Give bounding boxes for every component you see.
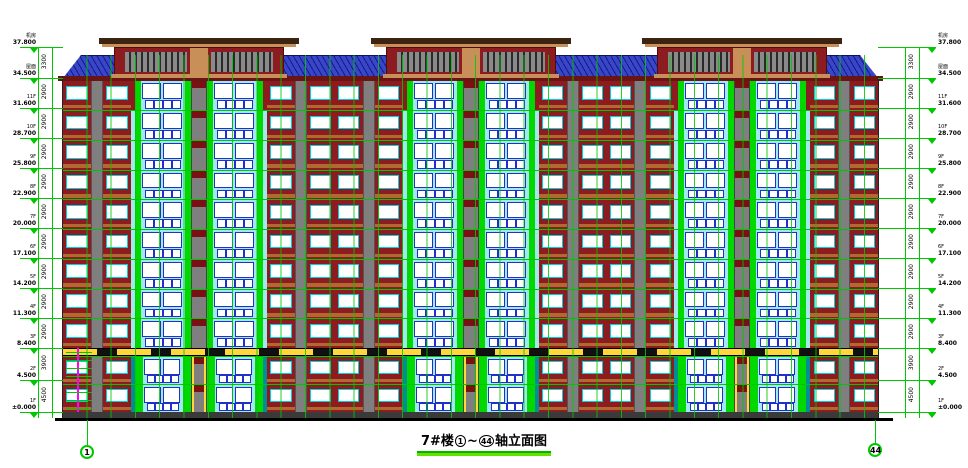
level-marker: 6F17.100 (2, 244, 36, 258)
level-triangle-icon (928, 169, 936, 174)
elevation-value: 22.900 (938, 190, 968, 197)
level-triangle-icon (30, 199, 38, 204)
level-triangle-icon (928, 259, 936, 264)
dim-text: 2900 (907, 144, 918, 162)
dim-text-label: 2900 (40, 114, 50, 129)
dim-text-label: 2900 (907, 234, 917, 249)
dim-text: 2900 (40, 294, 51, 312)
level-tick (20, 78, 63, 79)
dim-text-label: 2900 (40, 144, 50, 159)
level-triangle-icon (30, 259, 38, 264)
elevation-value: 8.400 (938, 340, 968, 347)
level-marker: 5F14.200 (2, 274, 36, 288)
dim-text: 2900 (907, 114, 918, 132)
level-tick (20, 348, 63, 349)
elevation-value: 11.300 (2, 310, 36, 317)
level-tick (20, 228, 63, 229)
dim-text: 3900 (40, 355, 51, 373)
level-triangle-icon (30, 169, 38, 174)
level-triangle-icon (928, 48, 936, 53)
dim-text: 4500 (40, 387, 51, 405)
dim-text-label: 4500 (907, 387, 917, 402)
level-marker: 屋面34.500 (938, 64, 968, 78)
dim-text: 3300 (907, 54, 918, 72)
elevation-value: 22.900 (2, 190, 36, 197)
dim-text-label: 2900 (40, 264, 50, 279)
level-triangle-icon (30, 413, 38, 418)
elevation-value: 34.500 (938, 70, 968, 77)
dim-text-label: 2900 (907, 324, 917, 339)
dim-text-label: 2900 (907, 144, 917, 159)
elevation-value: 11.300 (938, 310, 968, 317)
level-marker: 9F25.800 (938, 154, 968, 168)
dim-text-label: 2900 (907, 294, 917, 309)
dim-text: 2900 (40, 234, 51, 252)
dim-text-label: 2900 (907, 264, 917, 279)
elevation-value: ±0.000 (2, 404, 36, 411)
elevation-value: 17.100 (2, 250, 36, 257)
elevation-value: 28.700 (938, 130, 968, 137)
title-prefix: 7#楼 (421, 434, 454, 449)
dim-text-label: 2900 (40, 294, 50, 309)
elevation-value: 20.000 (938, 220, 968, 227)
level-marker: 2F4.500 (938, 366, 968, 380)
dim-text-label: 3300 (40, 54, 50, 69)
dim-text: 3300 (40, 54, 51, 72)
level-triangle-icon (30, 48, 38, 53)
dim-text: 2900 (40, 264, 51, 282)
level-tick (20, 47, 63, 48)
level-marker: 8F22.900 (938, 184, 968, 198)
level-marker: 8F22.900 (2, 184, 36, 198)
level-triangle-icon (928, 289, 936, 294)
dim-text-label: 2900 (907, 174, 917, 189)
level-marker: 屋面34.500 (2, 64, 36, 78)
podium-dim-tick (66, 376, 92, 377)
elevation-value: 28.700 (2, 130, 36, 137)
level-tick (20, 318, 63, 319)
building-edge-right (878, 76, 879, 420)
elevation-value: 25.800 (938, 160, 968, 167)
level-marker: 1F±0.000 (938, 398, 968, 412)
elevation-value: 14.200 (938, 280, 968, 287)
dim-text-label: 3900 (40, 355, 50, 370)
level-marker: 机房37.800 (938, 33, 968, 47)
level-triangle-icon (30, 109, 38, 114)
dim-text: 2900 (40, 174, 51, 192)
penthouse-roof-underside (645, 44, 839, 47)
dim-text-label: 2900 (40, 84, 50, 99)
elevation-value: 31.600 (938, 100, 968, 107)
dim-text: 2900 (907, 324, 918, 342)
title-tilde: ~ (467, 434, 478, 449)
title-axis-end-bubble: 44 (479, 435, 494, 447)
dim-text: 2900 (907, 84, 918, 102)
building-facade (63, 30, 878, 420)
level-marker: 9F25.800 (2, 154, 36, 168)
dim-text-label: 2900 (907, 84, 917, 99)
dim-text: 2900 (40, 114, 51, 132)
dim-text-label: 2900 (40, 234, 50, 249)
level-tick (20, 380, 63, 381)
elevation-value: 17.100 (938, 250, 968, 257)
elevation-value: 8.400 (2, 340, 36, 347)
level-triangle-icon (928, 229, 936, 234)
level-triangle-icon (30, 139, 38, 144)
podium-dim-tick (66, 400, 92, 401)
level-triangle-icon (928, 319, 936, 324)
level-tick (20, 108, 63, 109)
level-marker: 2F4.500 (2, 366, 36, 380)
level-marker: 10F28.700 (938, 124, 968, 138)
level-triangle-icon (30, 381, 38, 386)
level-marker: 7F20.000 (938, 214, 968, 228)
level-tick (20, 138, 63, 139)
level-triangle-icon (928, 109, 936, 114)
dim-line-vertical (905, 47, 906, 418)
level-tick (20, 258, 63, 259)
dim-text: 2900 (40, 84, 51, 102)
podium-dim-tick (66, 384, 92, 385)
level-tick (20, 288, 63, 289)
level-tick (20, 168, 63, 169)
level-marker: 4F11.300 (2, 304, 36, 318)
elevation-value: 25.800 (2, 160, 36, 167)
level-tick (20, 412, 63, 413)
level-triangle-icon (928, 349, 936, 354)
penthouse-roof-underside (374, 44, 568, 47)
level-marker: 11F31.600 (938, 94, 968, 108)
level-marker: 6F17.100 (938, 244, 968, 258)
level-marker: 11F31.600 (2, 94, 36, 108)
dim-text: 2900 (40, 324, 51, 342)
drawing-title-text: 7#楼1~44轴立面图 (417, 430, 551, 453)
elevation-value: 37.800 (938, 39, 968, 46)
level-marker: 7F20.000 (2, 214, 36, 228)
level-triangle-icon (30, 79, 38, 84)
level-marker: 1F±0.000 (2, 398, 36, 412)
elevation-value: 4.500 (938, 372, 968, 379)
level-tick (20, 198, 63, 199)
dim-text: 2900 (40, 204, 51, 222)
level-triangle-icon (928, 413, 936, 418)
level-marker: 3F8.400 (938, 334, 968, 348)
level-marker: 5F14.200 (938, 274, 968, 288)
elevation-value: 34.500 (2, 70, 36, 77)
dim-text-label: 2900 (40, 174, 50, 189)
dim-text-label: 2900 (907, 204, 917, 219)
dim-text: 2900 (907, 294, 918, 312)
dim-text-label: 3900 (907, 355, 917, 370)
dim-text: 3900 (907, 355, 918, 373)
podium-dim-tick (66, 408, 92, 409)
dim-text: 2900 (40, 144, 51, 162)
level-triangle-icon (30, 349, 38, 354)
level-triangle-icon (30, 319, 38, 324)
ground-line (55, 418, 893, 421)
elevation-value: ±0.000 (938, 404, 968, 411)
elevation-value: 14.200 (2, 280, 36, 287)
level-triangle-icon (30, 289, 38, 294)
dim-text-label: 2900 (40, 324, 50, 339)
dim-line-vertical (52, 47, 53, 418)
podium-dim-tick (66, 360, 92, 361)
elevation-value: 4.500 (2, 372, 36, 379)
level-marker: 3F8.400 (2, 334, 36, 348)
dim-text-label: 2900 (40, 204, 50, 219)
level-marker: 10F28.700 (2, 124, 36, 138)
dim-text: 2900 (907, 234, 918, 252)
dim-text-label: 4500 (40, 387, 50, 402)
drawing-title: 7#楼1~44轴立面图 (0, 430, 968, 453)
dim-line-vertical (38, 47, 39, 418)
dim-text: 2900 (907, 204, 918, 222)
dim-text: 4500 (907, 387, 918, 405)
axis-grid-overlay (63, 55, 878, 420)
level-triangle-icon (928, 381, 936, 386)
podium-dim-tick (66, 368, 92, 369)
dim-line-vertical (919, 47, 920, 418)
level-marker: 机房37.800 (2, 33, 36, 47)
dim-text: 2900 (907, 264, 918, 282)
podium-dim-tick (66, 392, 92, 393)
level-triangle-icon (928, 79, 936, 84)
dim-text: 2900 (907, 174, 918, 192)
level-triangle-icon (928, 139, 936, 144)
elevation-value: 31.600 (2, 100, 36, 107)
level-marker: 4F11.300 (938, 304, 968, 318)
dim-text-label: 2900 (907, 114, 917, 129)
podium-dim-tick (66, 352, 92, 353)
level-triangle-icon (928, 199, 936, 204)
penthouse-roof-underside (102, 44, 296, 47)
title-axis-start-bubble: 1 (455, 435, 466, 447)
elevation-value: 37.800 (2, 39, 36, 46)
elevation-drawing-canvas: 1 44 7#楼1~44轴立面图 机房37.800机房37.800屋面34.50… (0, 0, 968, 468)
elevation-value: 20.000 (2, 220, 36, 227)
dim-text-label: 3300 (907, 54, 917, 69)
level-triangle-icon (30, 229, 38, 234)
title-suffix: 轴立面图 (495, 434, 547, 449)
